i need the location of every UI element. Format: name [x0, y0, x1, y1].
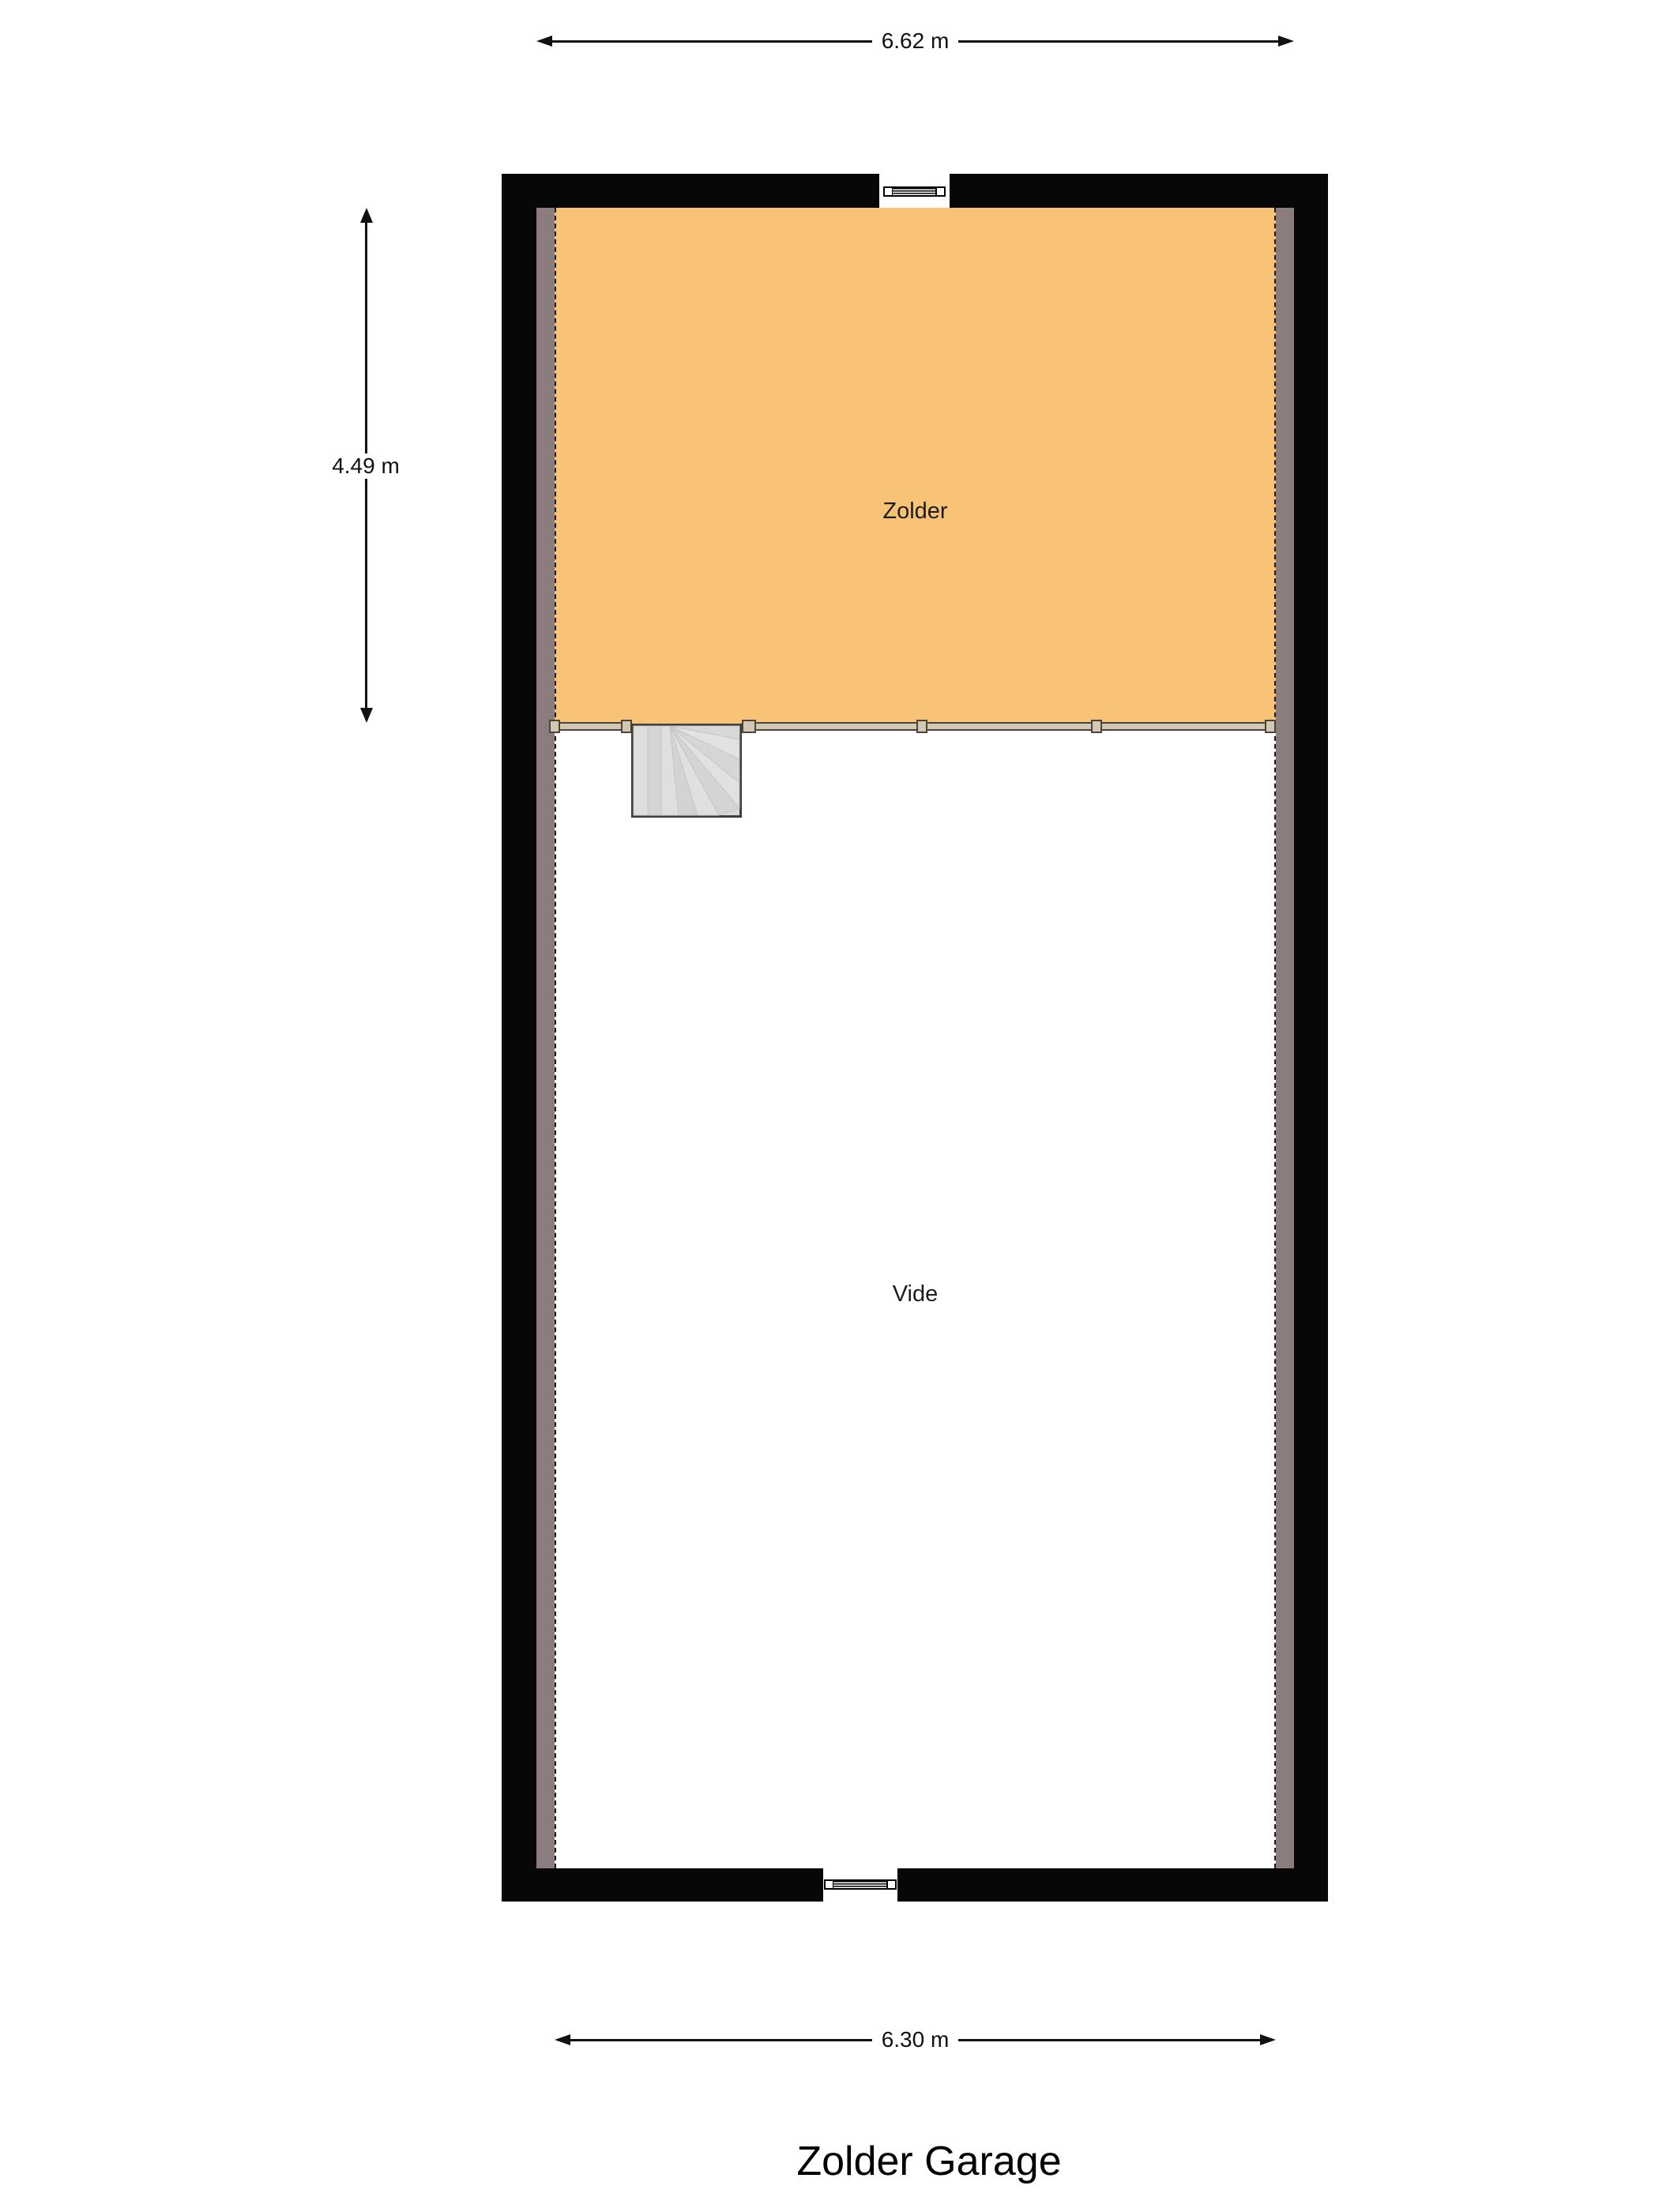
- dimension-left-label-row: 4.49 m: [291, 453, 441, 479]
- dimension-top-label: 6.62 m: [872, 30, 959, 52]
- window-frame-right: [886, 1879, 897, 1890]
- arrow-up-icon: [360, 208, 373, 223]
- plan-title: Zolder Garage: [692, 2138, 1166, 2185]
- room-label-vide: Vide: [555, 1281, 1276, 1307]
- railing-post: [621, 720, 632, 733]
- building-walls: Zolder Vide: [502, 174, 1328, 1902]
- railing-post: [1091, 720, 1102, 733]
- room-zolder: [555, 208, 1276, 724]
- arrow-down-icon: [360, 708, 373, 723]
- railing-segment-right: [742, 722, 1276, 731]
- window-louvre: [833, 1879, 887, 1890]
- inner-wall-left: [536, 208, 555, 1868]
- dimension-bottom-label: 6.30 m: [872, 2029, 959, 2051]
- railing-post: [916, 720, 927, 733]
- room-label-zolder: Zolder: [555, 498, 1276, 525]
- railing-segment-left: [555, 722, 631, 731]
- window-bottom-icon: [824, 1879, 897, 1890]
- inner-wall-right: [1276, 208, 1294, 1868]
- dimension-top-label-row: 6.62 m: [536, 30, 1294, 52]
- railing-post: [1265, 720, 1276, 733]
- building-interior: Zolder Vide: [536, 208, 1294, 1868]
- railing-post: [549, 720, 560, 733]
- dimension-left-label: 4.49 m: [325, 453, 406, 479]
- window-frame-right: [935, 186, 946, 197]
- inner-wall-boundary-left: [555, 208, 556, 1868]
- window-opening-bottom: [823, 1868, 897, 1902]
- spiral-stairs: [631, 724, 742, 818]
- floor-plan-canvas: 6.62 m 4.49 m 6.30 m: [0, 0, 1659, 2212]
- stairs-icon: [631, 724, 742, 818]
- dimension-bottom-label-row: 6.30 m: [555, 2029, 1276, 2051]
- dimension-top: 6.62 m: [536, 30, 1294, 52]
- window-opening-top: [879, 174, 950, 208]
- railing-post: [742, 720, 756, 733]
- inner-wall-boundary-right: [1274, 208, 1276, 1868]
- window-louvre: [893, 186, 936, 197]
- dimension-bottom: 6.30 m: [555, 2029, 1276, 2051]
- dimension-left: 4.49 m: [291, 208, 441, 723]
- window-top-icon: [883, 186, 946, 197]
